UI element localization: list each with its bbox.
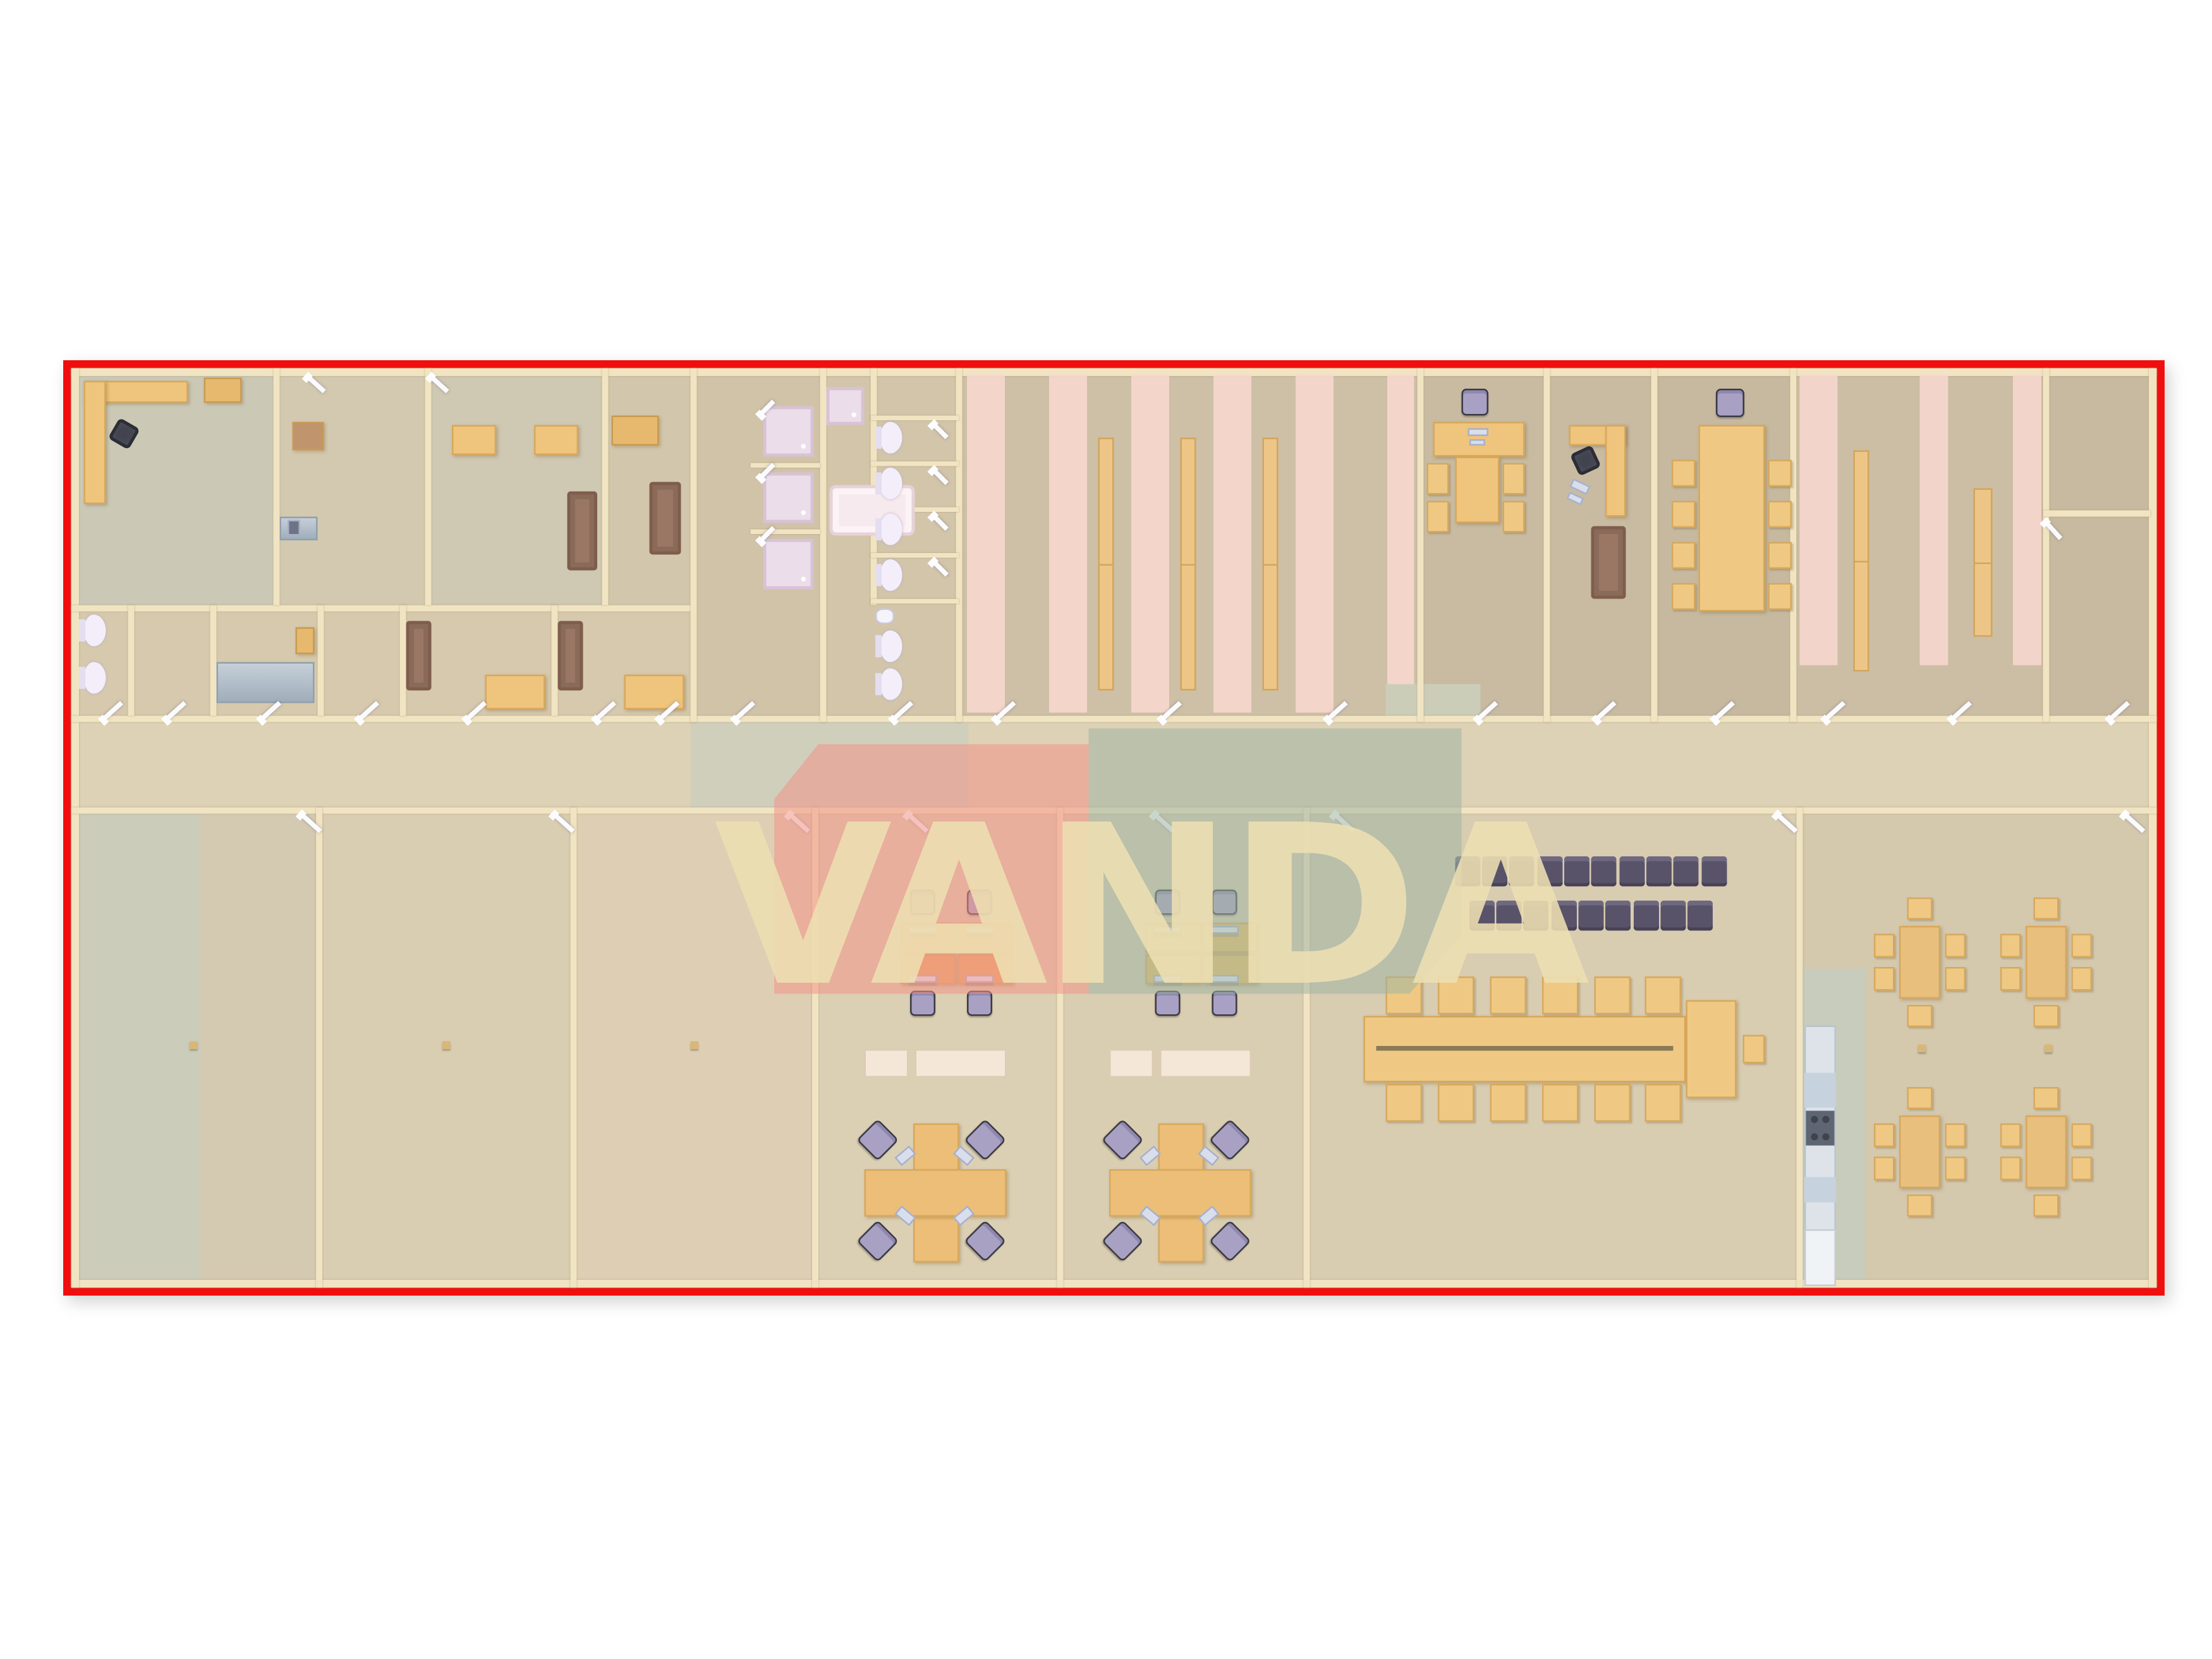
wall xyxy=(2043,511,2151,517)
wall xyxy=(210,605,217,716)
auditorium-chair xyxy=(1634,901,1659,931)
cafeteria-stool xyxy=(2034,897,2059,920)
locker-stripe xyxy=(1800,375,1838,665)
board-chair xyxy=(1768,501,1792,528)
auditorium-chair xyxy=(1591,856,1617,887)
store-sofa xyxy=(650,482,681,555)
pod2-cross-desk xyxy=(1109,1169,1251,1217)
waiting-sofa xyxy=(406,621,432,691)
floor-marker xyxy=(1918,1045,1926,1053)
locker-stripe xyxy=(1049,375,1087,713)
wall xyxy=(751,463,820,468)
conference-stool xyxy=(1645,976,1682,1014)
conference-stool xyxy=(1595,976,1631,1014)
cafeteria-stool xyxy=(2000,967,2021,991)
locker-stripe xyxy=(1920,375,1948,665)
kitchen-unit xyxy=(1804,1177,1836,1203)
cafeteria-stool xyxy=(2034,1087,2059,1109)
kitchen-sink-unit xyxy=(1804,1073,1836,1108)
shower-stall xyxy=(763,539,814,590)
cafeteria-stool xyxy=(1945,1124,1966,1148)
kitchen-fridge xyxy=(1804,1229,1836,1286)
office-floorplan: VANDA xyxy=(63,360,2165,1296)
cafeteria-stool xyxy=(1907,1087,1933,1109)
cafeteria-stool xyxy=(2072,1157,2093,1181)
wall xyxy=(691,368,697,722)
service-band-floor xyxy=(75,605,691,716)
cafeteria-stool xyxy=(2072,967,2093,991)
locker-stripe xyxy=(2013,375,2041,665)
auditorium-chair xyxy=(1620,856,1645,887)
wall xyxy=(71,1280,2157,1288)
floorplan-stage: VANDA xyxy=(0,0,2212,1659)
cafeteria-stool xyxy=(2034,1005,2059,1027)
treatment-cabinet xyxy=(296,628,315,655)
treatment-table xyxy=(217,662,315,703)
right-rooms-floor xyxy=(2043,372,2151,716)
wall xyxy=(1797,808,1803,1288)
shower-stall xyxy=(763,406,814,457)
wall xyxy=(602,368,609,605)
cafeteria-table xyxy=(1899,1115,1940,1188)
wall xyxy=(2043,368,2050,722)
store-cabinet xyxy=(612,416,659,446)
conference-stool xyxy=(1386,1084,1423,1122)
board-chair xyxy=(1672,460,1696,487)
meeting-t-desk xyxy=(1455,457,1500,523)
pod1-cross-desk xyxy=(865,1169,1007,1217)
meeting-stool xyxy=(1427,501,1449,533)
waiting-sofa xyxy=(558,621,583,691)
empty-room-a-green xyxy=(75,808,201,1288)
kitchen-cooktop xyxy=(1806,1111,1835,1146)
meeting-office-green-patch xyxy=(1386,684,1481,716)
meeting-mouse xyxy=(1469,439,1485,446)
pod1-credenza xyxy=(915,1049,1007,1078)
floor-marker xyxy=(2045,1045,2053,1053)
board-chair xyxy=(1672,501,1696,528)
conference-table-slot xyxy=(1376,1046,1674,1051)
board-chair xyxy=(1768,583,1792,611)
wall xyxy=(871,553,959,558)
locker-bench xyxy=(1854,451,1869,672)
waiting-table xyxy=(485,675,545,710)
exec-sofa xyxy=(1591,526,1626,599)
wall xyxy=(400,605,406,716)
floor-marker xyxy=(442,1042,451,1050)
cafeteria-stool xyxy=(1874,1157,1895,1181)
shower-stall xyxy=(827,387,865,425)
cafeteria-stool xyxy=(2072,934,2093,958)
meeting-stool xyxy=(1503,463,1525,495)
auditorium-chair xyxy=(1646,856,1672,887)
locker-stripe xyxy=(1387,375,1414,684)
pod2-credenza xyxy=(1160,1049,1251,1078)
lounge-sofa xyxy=(568,492,598,571)
vanda-watermark-text: VANDA xyxy=(708,798,1589,1019)
wall xyxy=(274,368,280,605)
meeting-keyboard xyxy=(1468,428,1489,437)
wall xyxy=(1544,368,1550,722)
exec-l-desk xyxy=(1605,425,1626,517)
auditorium-chair xyxy=(1605,901,1631,931)
floor-marker xyxy=(190,1042,198,1050)
reception-l-desk xyxy=(84,381,106,504)
wall xyxy=(871,599,959,604)
auditorium-chair xyxy=(1702,856,1727,887)
wall xyxy=(751,530,820,535)
board-table xyxy=(1699,425,1765,612)
cafeteria-stool xyxy=(1907,1005,1933,1027)
locker-stripe xyxy=(967,375,1005,713)
cafeteria-stool xyxy=(1945,967,1966,991)
floor-marker xyxy=(691,1042,699,1050)
cafeteria-stool xyxy=(1874,1124,1895,1148)
office-2-floor xyxy=(274,372,425,605)
board-chair xyxy=(1768,542,1792,569)
cafeteria-stool xyxy=(2072,1124,2093,1148)
wall xyxy=(871,416,959,421)
washbasin xyxy=(875,609,894,624)
cafeteria-stool xyxy=(2000,1124,2021,1148)
cafeteria-stool xyxy=(1874,967,1895,991)
conference-table-head xyxy=(1686,1000,1737,1098)
wall xyxy=(1418,368,1424,722)
wall xyxy=(871,461,959,466)
conference-stool xyxy=(1542,1084,1579,1122)
locker-stripe xyxy=(1296,375,1334,713)
wall xyxy=(71,368,80,1288)
cafeteria-stool xyxy=(1874,934,1895,958)
wall xyxy=(71,605,691,612)
conference-stool xyxy=(1438,1084,1474,1122)
cafeteria-stool xyxy=(2000,1157,2021,1181)
board-head-chair xyxy=(1716,389,1744,417)
locker-stripe xyxy=(1213,375,1251,713)
board-chair xyxy=(1672,542,1696,569)
wall xyxy=(552,605,558,716)
conference-stool xyxy=(1595,1084,1631,1122)
wall xyxy=(956,368,963,722)
wall xyxy=(71,716,2157,722)
lounge-table xyxy=(534,425,578,456)
conference-stool xyxy=(1645,1084,1682,1122)
wall xyxy=(318,605,324,716)
wall xyxy=(2149,368,2157,1288)
cafeteria-stool xyxy=(2034,1194,2059,1217)
reception-cabinet xyxy=(204,378,242,403)
auditorium-chair xyxy=(1661,901,1686,931)
locker-stripe xyxy=(1131,375,1169,713)
cafeteria-stool xyxy=(1907,1194,1933,1217)
conference-stool xyxy=(1743,1035,1765,1064)
office2-pc xyxy=(288,520,300,536)
cafeteria-table xyxy=(1899,926,1940,999)
wall xyxy=(571,808,577,1288)
meeting-stool xyxy=(1503,501,1525,533)
meeting-chair xyxy=(1462,389,1489,416)
wall xyxy=(71,368,2157,377)
auditorium-chair xyxy=(1674,856,1699,887)
office2-bookcase xyxy=(293,422,324,451)
locker-bench xyxy=(1181,438,1196,691)
cafeteria-table xyxy=(2026,1115,2067,1188)
locker-bench xyxy=(1098,438,1114,691)
pod2-credenza xyxy=(1109,1049,1153,1078)
cafeteria-stool xyxy=(1945,934,1966,958)
locker-bench xyxy=(1974,489,1993,637)
cafeteria-stool xyxy=(1945,1157,1966,1181)
cafeteria-stool xyxy=(2000,934,2021,958)
board-chair xyxy=(1768,460,1792,487)
auditorium-chair xyxy=(1687,901,1713,931)
lounge-table xyxy=(452,425,496,456)
cafeteria-stool xyxy=(1907,897,1933,920)
locker-bench xyxy=(1263,438,1279,691)
wall xyxy=(128,605,135,716)
board-chair xyxy=(1672,583,1696,611)
cafeteria-table xyxy=(2026,926,2067,999)
wall xyxy=(425,368,432,605)
wall xyxy=(316,808,322,1288)
meeting-stool xyxy=(1427,463,1449,495)
wall xyxy=(820,368,827,722)
pod1-credenza xyxy=(865,1049,909,1078)
shower-stall xyxy=(763,473,814,523)
wall xyxy=(1651,368,1658,722)
conference-stool xyxy=(1490,1084,1527,1122)
